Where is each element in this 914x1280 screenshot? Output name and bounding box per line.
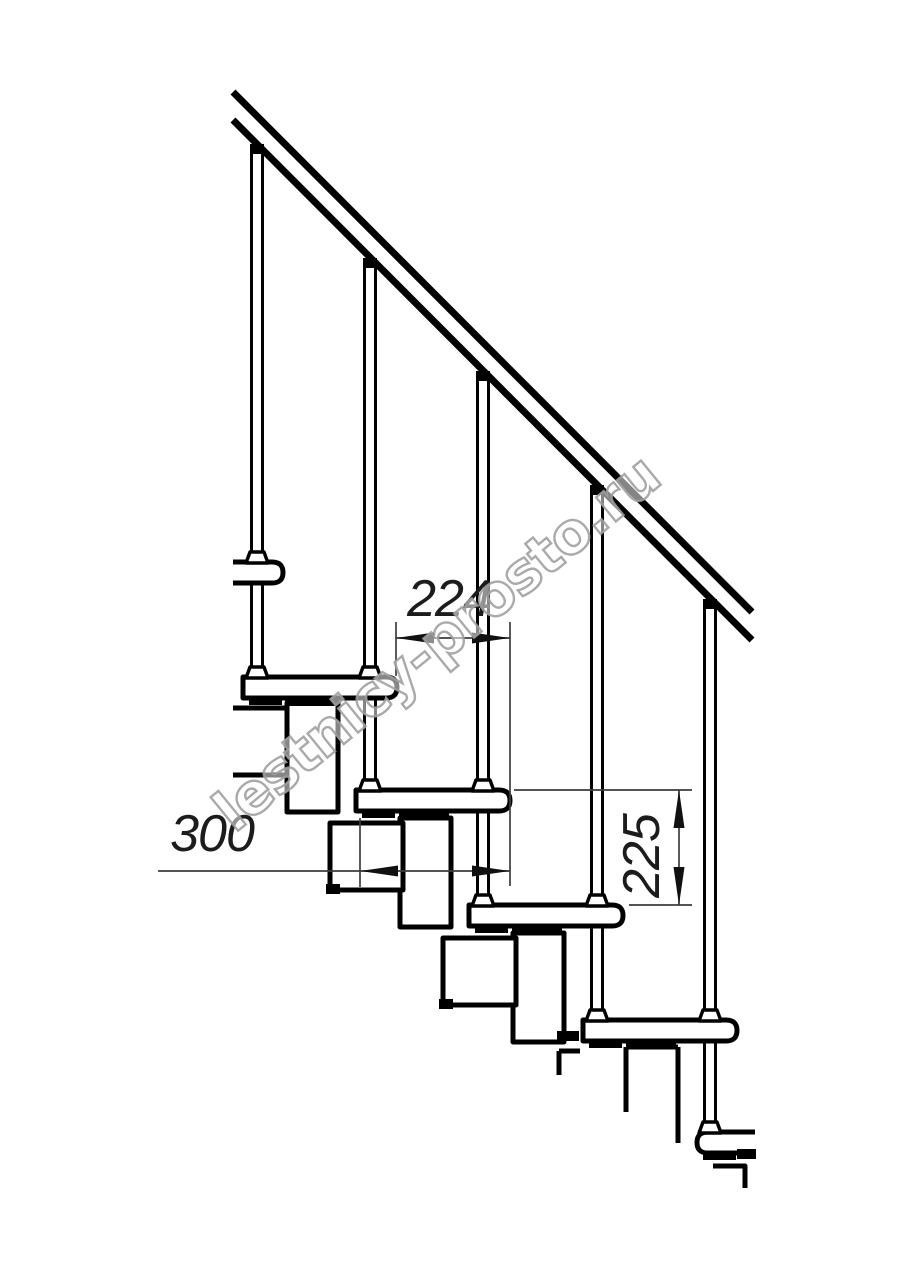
baluster-base [359, 780, 381, 791]
tread-2 [356, 790, 510, 811]
dim-label-step-rise: 225 [613, 812, 671, 899]
module-foot [439, 999, 453, 1009]
bracket [589, 1039, 622, 1048]
baluster-base [472, 895, 494, 906]
baluster-cap [363, 258, 377, 268]
baluster-collar [472, 780, 494, 791]
handrail-upper-line [233, 92, 752, 612]
stringer-module [513, 933, 564, 1042]
baluster-shaft [252, 150, 263, 677]
bracket [737, 1149, 756, 1159]
baluster-cap [476, 371, 490, 381]
tread-top-partial [233, 562, 283, 583]
baluster-shaft [592, 491, 603, 1020]
stringer-module-cut-lower [559, 1047, 678, 1143]
stringer-module [400, 818, 451, 927]
dim-arrow [674, 867, 685, 905]
dim-arrow [674, 790, 685, 828]
baluster-shaft [705, 605, 716, 1132]
baluster-base [246, 667, 268, 678]
stringer-module-square [443, 938, 516, 1005]
bracket [703, 1151, 736, 1160]
bracket [362, 809, 395, 818]
baluster-collar [246, 552, 268, 563]
module-foot [326, 884, 340, 894]
bracket [626, 1041, 676, 1049]
stringer-cut-line [713, 1166, 745, 1188]
bracket [475, 924, 508, 933]
baluster-collar [586, 895, 608, 906]
baluster-cap [250, 144, 264, 154]
baluster-base [586, 1010, 608, 1021]
module-foot [557, 1031, 579, 1041]
bracket [399, 811, 449, 819]
baluster-collar [699, 1010, 721, 1021]
bracket [249, 696, 282, 705]
bracket [512, 926, 562, 934]
tread-3 [469, 905, 623, 926]
dim-arrow [472, 866, 510, 877]
stringer-module-square [330, 823, 403, 890]
tread-4 [583, 1020, 737, 1041]
technical-drawing-canvas: 224 300 225 lestnicy-prosto.ru [0, 0, 914, 1280]
baluster-base [699, 1122, 721, 1133]
baluster-cap [703, 599, 717, 609]
